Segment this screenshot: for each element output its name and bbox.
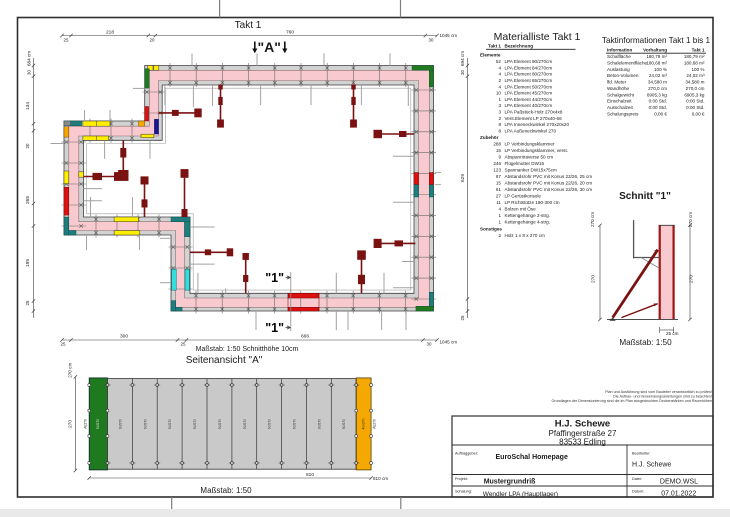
svg-text:810: 810 (306, 472, 314, 478)
svg-text:Auslastung: Auslastung (607, 67, 630, 72)
svg-text:Schalgewicht: Schalgewicht (607, 92, 635, 97)
svg-text:123: 123 (493, 168, 501, 173)
svg-text:Grundlagen der Dimensionierung: Grundlagen der Dimensionierung sind die … (551, 399, 712, 403)
svg-text:90/270: 90/270 (96, 419, 100, 429)
svg-text:Kettengehänge 2-strg.: Kettengehänge 2-strg. (505, 213, 550, 218)
svg-text:180,79 m²: 180,79 m² (646, 54, 667, 59)
svg-text:0:00 Std.: 0:00 Std. (686, 99, 704, 104)
svg-text:Wandhöhe: Wandhöhe (607, 86, 629, 91)
svg-text:0:00 Std.: 0:00 Std. (686, 105, 704, 110)
svg-text:61: 61 (496, 187, 502, 192)
svg-text:24,02 m³: 24,02 m³ (686, 73, 705, 78)
svg-text:684 cm: 684 cm (26, 51, 31, 66)
svg-text:25: 25 (25, 300, 30, 305)
svg-text:666: 666 (301, 334, 309, 340)
svg-text:270 cm: 270 cm (590, 212, 595, 227)
svg-text:270,0 cm: 270,0 cm (686, 86, 705, 91)
svg-text:Bezeichnung: Bezeichnung (505, 44, 534, 49)
svg-text:270: 270 (591, 275, 597, 283)
svg-text:218: 218 (106, 30, 114, 36)
svg-text:90/270: 90/270 (293, 419, 297, 429)
svg-text:83533 Edling: 83533 Edling (559, 437, 606, 446)
svg-text:LPA Inneneckwinkel 270x20x20: LPA Inneneckwinkel 270x20x20 (505, 122, 570, 127)
svg-text:LP Verbindungsklammer: LP Verbindungsklammer (505, 142, 555, 147)
svg-text:90/270: 90/270 (268, 419, 272, 429)
svg-text:LPA Element 90/270cm: LPA Element 90/270cm (505, 59, 553, 64)
svg-text:EuroSchal Homepage: EuroSchal Homepage (496, 454, 568, 461)
svg-text:90/270: 90/270 (118, 419, 122, 429)
svg-text:8: 8 (498, 122, 501, 127)
svg-text:Plan und Ausführung sind vom B: Plan und Ausführung sind vom Bauleiter v… (605, 390, 712, 394)
svg-text:2: 2 (498, 116, 501, 121)
svg-text:Auftraggeber:: Auftraggeber: (455, 452, 478, 456)
svg-text:11: 11 (496, 200, 501, 205)
svg-text:Projekt:: Projekt: (455, 477, 468, 481)
svg-text:270: 270 (68, 420, 74, 428)
svg-text:90/270: 90/270 (317, 419, 321, 429)
svg-text:Spannanker DW15x75cm: Spannanker DW15x75cm (505, 168, 558, 173)
svg-text:LPA Außeneckwinkel 270: LPA Außeneckwinkel 270 (505, 128, 557, 133)
svg-text:180,79 m²: 180,79 m² (684, 54, 705, 59)
svg-text:0,00 €: 0,00 € (654, 111, 667, 116)
svg-text:Vorhaltung: Vorhaltung (643, 48, 667, 53)
svg-text:270,0 cm: 270,0 cm (648, 86, 667, 91)
svg-text:8: 8 (498, 128, 501, 133)
svg-text:Ausschalzeit: Ausschalzeit (607, 105, 634, 110)
svg-text:629: 629 (460, 174, 466, 182)
svg-text:25: 25 (64, 38, 69, 43)
svg-text:24,02 m³: 24,02 m³ (649, 73, 668, 78)
svg-text:LP Gerüstkonsole: LP Gerüstkonsole (505, 194, 542, 199)
svg-text:6905,3 kg: 6905,3 kg (684, 92, 705, 97)
svg-text:Schalfläche: Schalfläche (607, 54, 631, 59)
svg-text:Takt 1: Takt 1 (692, 48, 705, 53)
svg-text:1: 1 (498, 213, 501, 218)
svg-text:100 %: 100 % (691, 67, 704, 72)
svg-text:Schalungspreis: Schalungspreis (607, 111, 639, 116)
svg-text:LPA Paßstück-Holz 270x4x8: LPA Paßstück-Holz 270x4x8 (505, 110, 563, 115)
svg-text:07.01.2022: 07.01.2022 (661, 490, 696, 497)
svg-text:6905,3 kg: 6905,3 kg (647, 92, 668, 97)
svg-text:1045 cm: 1045 cm (440, 33, 458, 38)
svg-text:H.J. Schewe: H.J. Schewe (555, 419, 610, 430)
svg-text:Schalung:: Schalung: (455, 489, 472, 493)
svg-text:90/270: 90/270 (243, 419, 247, 429)
svg-text:Seitenansicht "A": Seitenansicht "A" (186, 355, 263, 366)
svg-text:300: 300 (120, 334, 128, 340)
svg-text:0:00 Std.: 0:00 Std. (649, 99, 667, 104)
svg-text:4: 4 (498, 84, 501, 89)
svg-text:Abspanntraverse 50 cm: Abspanntraverse 50 cm (505, 155, 554, 160)
svg-text:9: 9 (498, 155, 501, 160)
svg-text:Information: Information (607, 48, 632, 53)
svg-text:1045 cm: 1045 cm (440, 340, 458, 345)
svg-text:30: 30 (26, 70, 31, 75)
svg-text:Vent.Element LP 270x40-66: Vent.Element LP 270x40-66 (505, 116, 563, 121)
svg-text:1: 1 (498, 97, 501, 102)
svg-text:LPA Element 65/270cm: LPA Element 65/270cm (505, 78, 553, 83)
svg-text:270: 270 (689, 275, 695, 283)
svg-text:90/270: 90/270 (168, 419, 172, 429)
svg-text:Beton-Volumen: Beton-Volumen (607, 73, 639, 78)
svg-text:90/270: 90/270 (143, 419, 147, 429)
svg-text:34,580 m: 34,580 m (648, 80, 667, 85)
svg-text:Zubehör: Zubehör (480, 135, 499, 140)
svg-text:Maßstab: 1:50: Maßstab: 1:50 (619, 338, 672, 347)
svg-text:4: 4 (498, 72, 501, 77)
svg-text:LPA Element 80/270cm: LPA Element 80/270cm (505, 72, 553, 77)
svg-text:LPA Element 50/270cm: LPA Element 50/270cm (505, 84, 553, 89)
svg-text:27: 27 (496, 194, 502, 199)
svg-text:30: 30 (427, 342, 432, 347)
svg-text:Mustergrundriß: Mustergrundriß (484, 478, 536, 485)
svg-text:Datum:: Datum: (632, 489, 644, 493)
svg-text:Schalelementfläche: Schalelementfläche (607, 61, 648, 66)
svg-text:"A": "A" (258, 39, 281, 55)
svg-text:67: 67 (496, 174, 502, 179)
svg-text:25 cm: 25 cm (666, 331, 679, 336)
svg-text:1: 1 (498, 220, 501, 225)
svg-text:Takt 1: Takt 1 (488, 44, 501, 49)
svg-text:2: 2 (498, 78, 501, 83)
svg-text:Abstandsrohr PVC mit Konus 22/: Abstandsrohr PVC mit Konus 22/26, 20 cm (505, 181, 593, 186)
svg-text:4: 4 (498, 65, 501, 70)
svg-text:195: 195 (25, 259, 31, 267)
svg-text:Takt 1: Takt 1 (235, 20, 262, 31)
svg-text:270 cm: 270 cm (688, 212, 693, 227)
svg-text:Bolzen mit Öse: Bolzen mit Öse (505, 206, 537, 212)
svg-text:30: 30 (429, 38, 434, 43)
svg-text:180,68 m²: 180,68 m² (684, 61, 705, 66)
svg-text:Materialliste Takt 1: Materialliste Takt 1 (494, 31, 581, 43)
svg-text:25: 25 (460, 315, 465, 320)
svg-text:30: 30 (460, 70, 465, 75)
svg-text:Maßstab: 1:50: Maßstab: 1:50 (200, 486, 252, 495)
svg-text:52: 52 (496, 59, 502, 64)
svg-text:Abstandsrohr PVC mit Konus 22/: Abstandsrohr PVC mit Konus 22/26, 30 cm (505, 187, 593, 192)
svg-text:Flügelmutter DW15: Flügelmutter DW15 (505, 161, 545, 166)
svg-text:Wendler LPA (Hauptlager): Wendler LPA (Hauptlager) (483, 491, 558, 498)
svg-text:LPA Element 44/270cm: LPA Element 44/270cm (505, 97, 553, 102)
svg-text:AE270: AE270 (84, 419, 88, 429)
svg-text:Taktinformationen Takt 1 bis: Taktinformationen Takt 1 bis 1 (602, 36, 711, 45)
svg-text:"1": "1" (265, 271, 284, 285)
svg-text:Maßstab: 1:50 Schnitthöhe 10: Maßstab: 1:50 Schnitthöhe 10cm (196, 346, 299, 353)
svg-text:90/270: 90/270 (218, 419, 222, 429)
svg-text:25: 25 (61, 342, 66, 347)
svg-text:134: 134 (25, 102, 31, 110)
svg-text:LPA Element 45/270cm: LPA Element 45/270cm (505, 91, 553, 96)
svg-text:760: 760 (286, 30, 294, 36)
svg-text:3: 3 (498, 103, 501, 108)
svg-text:15: 15 (496, 181, 502, 186)
svg-text:Holz 1 x 8 x 270 cm: Holz 1 x 8 x 270 cm (505, 233, 546, 238)
svg-text:694 cm: 694 cm (460, 51, 465, 66)
svg-text:810 cm: 810 cm (373, 476, 388, 481)
svg-text:10: 10 (496, 91, 502, 96)
svg-text:0,00 €: 0,00 € (692, 111, 705, 116)
svg-text:Kettengehänge 4-strg.: Kettengehänge 4-strg. (505, 220, 550, 225)
svg-text:180,68 m²: 180,68 m² (646, 61, 667, 66)
svg-text:15: 15 (496, 148, 502, 153)
svg-text:AE270: AE270 (372, 419, 376, 429)
svg-text:34,580 m: 34,580 m (685, 80, 704, 85)
svg-text:Die Aufbau- und Verwendungsanl: Die Aufbau- und Verwendungsanleitungen s… (613, 395, 712, 399)
svg-text:Schnitt "1": Schnitt "1" (619, 191, 671, 202)
svg-text:20: 20 (25, 143, 30, 148)
svg-text:Elemente: Elemente (480, 53, 501, 58)
svg-text:0:00 Std.: 0:00 Std. (649, 105, 667, 110)
svg-text:"1": "1" (265, 321, 284, 335)
svg-text:25: 25 (181, 342, 186, 347)
svg-text:Abstandsrohr PVC mit Konus 22/: Abstandsrohr PVC mit Konus 22/26, 25 cm (505, 174, 593, 179)
svg-text:Einschalzeit: Einschalzeit (607, 99, 632, 104)
svg-text:3: 3 (498, 110, 501, 115)
svg-text:90/270: 90/270 (342, 419, 346, 429)
svg-text:270 cm: 270 cm (68, 363, 73, 378)
svg-text:100 %: 100 % (654, 67, 667, 72)
svg-text:Bearbeiter:: Bearbeiter: (632, 451, 651, 455)
svg-text:40x270: 40x270 (362, 418, 366, 429)
svg-text:20: 20 (150, 38, 155, 43)
svg-text:265: 265 (25, 196, 31, 204)
svg-text:LPA Element 84/270cm: LPA Element 84/270cm (505, 65, 553, 70)
svg-text:DEMO.WSL: DEMO.WSL (660, 478, 698, 485)
svg-text:2: 2 (498, 233, 501, 238)
svg-text:Sonstiges: Sonstiges (480, 227, 502, 232)
svg-text:246: 246 (493, 161, 501, 166)
svg-text:90/270: 90/270 (193, 419, 197, 429)
svg-text:LP Verbindungsklammer, verst.: LP Verbindungsklammer, verst. (505, 148, 569, 153)
svg-text:Datei:: Datei: (632, 477, 642, 481)
svg-text:288: 288 (493, 142, 501, 147)
svg-text:lfd. Meter: lfd. Meter (607, 80, 627, 85)
svg-text:LPA Element 40/270cm: LPA Element 40/270cm (505, 103, 553, 108)
svg-text:4: 4 (498, 207, 501, 212)
svg-text:H.J. Schewe: H.J. Schewe (632, 461, 671, 468)
svg-text:LP Richtstütze 180-300 cm: LP Richtstütze 180-300 cm (505, 200, 560, 205)
